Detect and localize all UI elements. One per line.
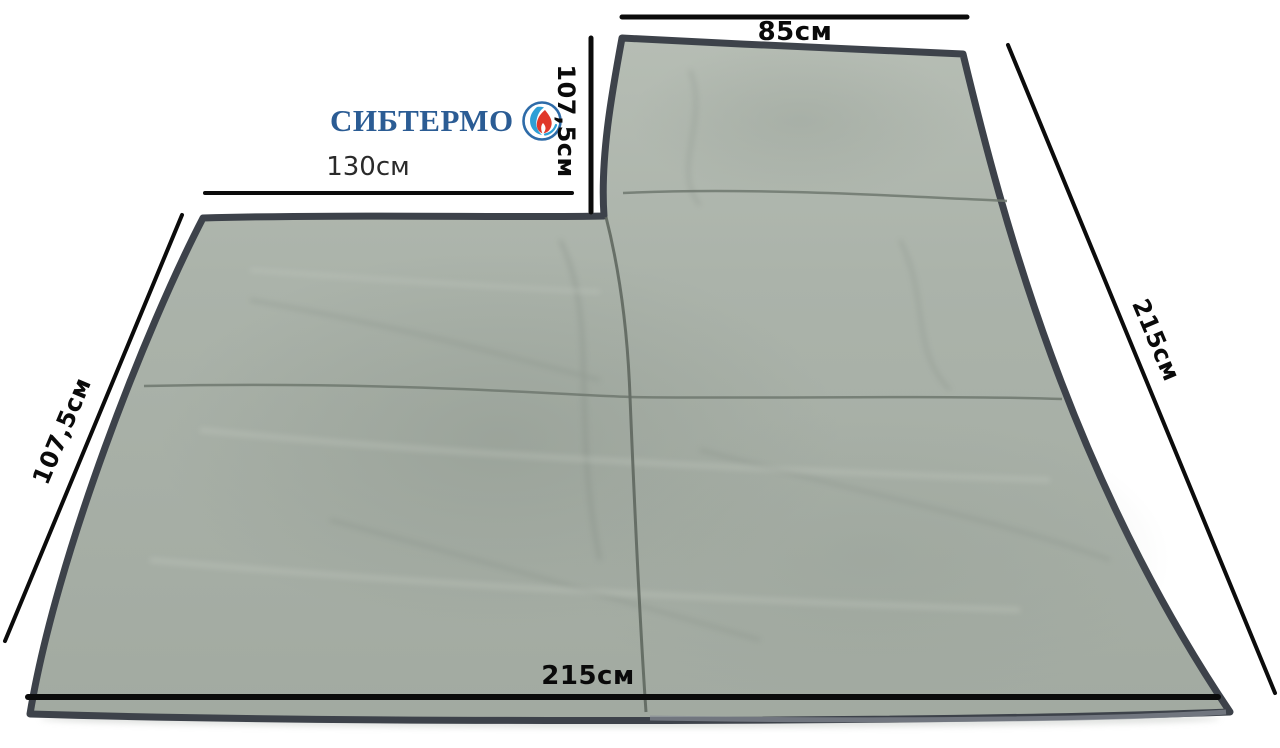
dimension-label-top-width: 85см bbox=[758, 17, 833, 47]
dimension-label-bottom-width: 215см bbox=[541, 661, 634, 691]
brand-logo: СИБТЕРМО bbox=[330, 99, 563, 143]
mat-illustration bbox=[0, 0, 1280, 748]
brand-logo-text: СИБТЕРМО bbox=[330, 99, 514, 143]
dimension-label-flap-height: 107,5см bbox=[552, 64, 580, 177]
product-dimension-diagram: СИБТЕРМО 85см 107,5см 130см 215см 107,5с… bbox=[0, 0, 1280, 748]
fabric-shading bbox=[630, 40, 970, 200]
fabric-shading bbox=[570, 410, 1170, 710]
dimension-label-notch-width: 130см bbox=[326, 152, 410, 182]
